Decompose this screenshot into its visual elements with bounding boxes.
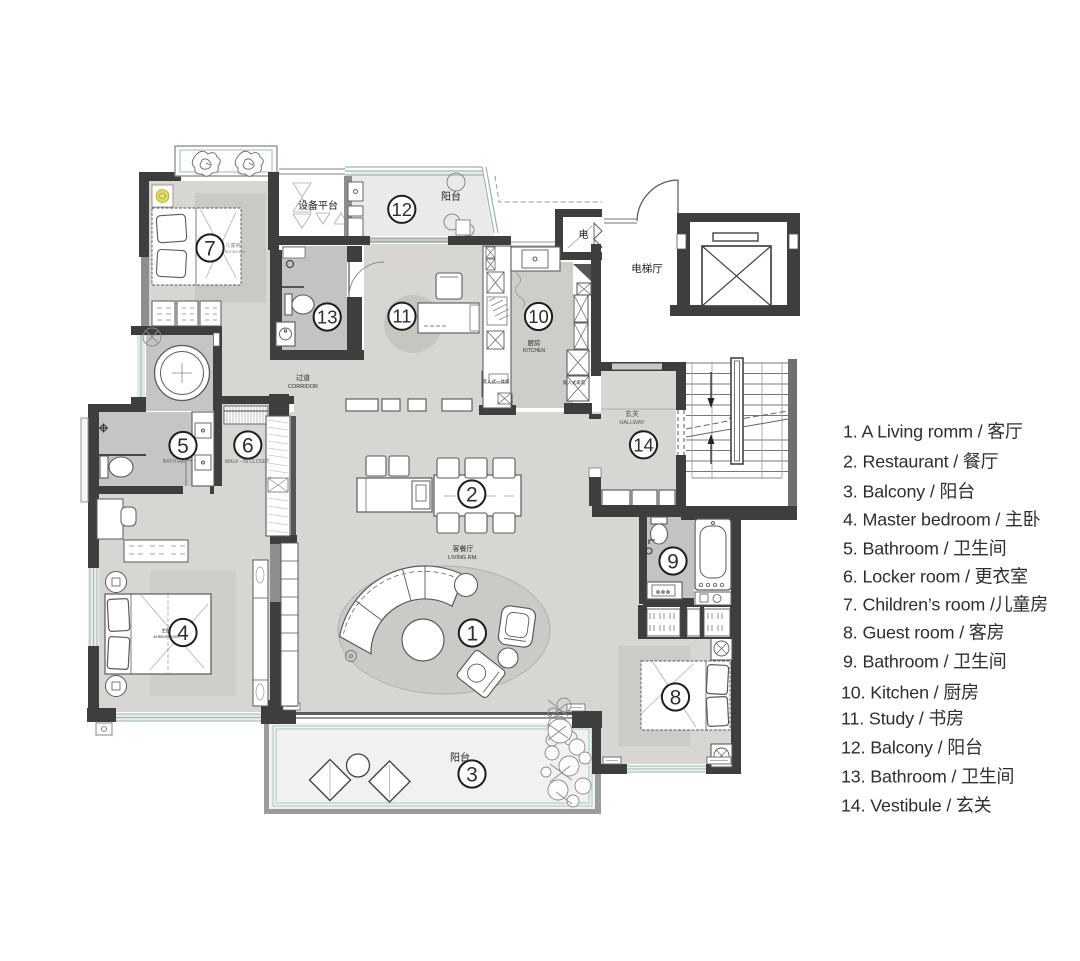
svg-text:9: 9 [667, 551, 679, 574]
svg-text:5: 5 [177, 435, 189, 458]
svg-text:6. Locker room / 更衣室: 6. Locker room / 更衣室 [843, 567, 1028, 587]
svg-text:14. Vestibule / 玄关: 14. Vestibule / 玄关 [841, 796, 992, 816]
svg-text:嵌入式一体机: 嵌入式一体机 [483, 378, 510, 385]
svg-text:BATH RM: BATH RM [163, 459, 185, 465]
svg-text:9. Bathroom / 卫生间: 9. Bathroom / 卫生间 [843, 652, 1007, 672]
svg-text:嵌入式家电: 嵌入式家电 [563, 379, 586, 386]
svg-text:1. A Living romm / 客厅: 1. A Living romm / 客厅 [843, 422, 1023, 442]
svg-text:2: 2 [466, 484, 478, 507]
svg-text:主卧: 主卧 [162, 627, 171, 634]
svg-text:M.BEDROOM: M.BEDROOM [153, 634, 178, 639]
svg-text:HALLWAY: HALLWAY [619, 420, 645, 426]
svg-text:客餐厅: 客餐厅 [453, 544, 474, 553]
svg-text:4. Master bedroom / 主卧: 4. Master bedroom / 主卧 [843, 510, 1041, 530]
svg-text:5. Bathroom / 卫生间: 5. Bathroom / 卫生间 [843, 539, 1007, 559]
svg-text:3: 3 [466, 764, 478, 787]
svg-text:电梯厅: 电梯厅 [631, 262, 663, 275]
svg-text:7. Children’s room /儿童房: 7. Children’s room /儿童房 [843, 595, 1048, 615]
svg-text:14: 14 [633, 434, 654, 455]
svg-text:CORRIDOR: CORRIDOR [288, 384, 318, 390]
svg-text:12: 12 [392, 199, 413, 220]
svg-text:11. Study / 书房: 11. Study / 书房 [841, 709, 964, 729]
svg-text:儿童房: 儿童房 [225, 242, 240, 249]
svg-text:LIVING RM.: LIVING RM. [448, 555, 478, 561]
svg-text:阳台: 阳台 [441, 190, 461, 203]
svg-text:4: 4 [177, 622, 189, 645]
svg-text:WALK - IN CLOSET: WALK - IN CLOSET [225, 459, 270, 465]
svg-text:13: 13 [317, 307, 338, 328]
svg-text:1: 1 [467, 623, 479, 646]
svg-text:厨房: 厨房 [528, 338, 541, 347]
svg-text:10. Kitchen / 厨房: 10. Kitchen / 厨房 [841, 683, 979, 703]
svg-text:8: 8 [670, 687, 682, 710]
svg-text:12. Balcony / 阳台: 12. Balcony / 阳台 [841, 738, 983, 758]
svg-text:2. Restaurant / 餐厅: 2. Restaurant / 餐厅 [843, 452, 999, 472]
svg-text:设备平台: 设备平台 [298, 199, 338, 212]
svg-text:10: 10 [528, 306, 549, 327]
svg-text:电: 电 [579, 228, 589, 241]
svg-text:阳台: 阳台 [450, 751, 470, 764]
svg-text:6: 6 [242, 435, 254, 458]
svg-text:11: 11 [392, 306, 411, 327]
svg-text:C.BEDROOM: C.BEDROOM [221, 249, 246, 254]
svg-text:8. Guest room / 客房: 8. Guest room / 客房 [843, 623, 1004, 643]
svg-text:7: 7 [204, 238, 216, 261]
svg-text:13. Bathroom / 卫生间: 13. Bathroom / 卫生间 [841, 767, 1014, 787]
svg-text:KITCHEN: KITCHEN [523, 348, 545, 354]
svg-text:过道: 过道 [296, 373, 310, 382]
svg-text:玄关: 玄关 [625, 409, 639, 418]
svg-text:3. Balcony / 阳台: 3. Balcony / 阳台 [843, 482, 975, 502]
